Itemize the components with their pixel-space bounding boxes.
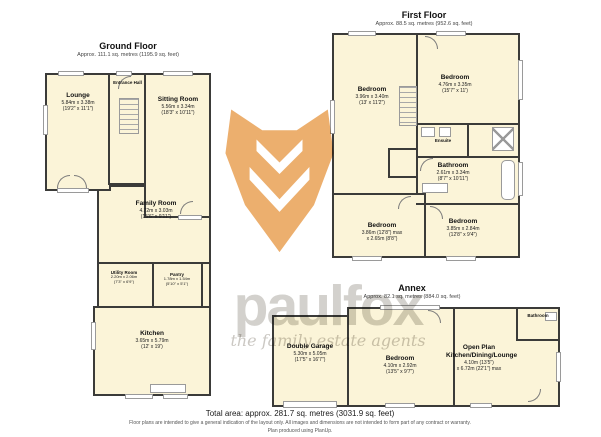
wall-bathroom [516,309,518,341]
window [385,403,415,408]
first-floor-area-text: Approx. 88.5 sq. metres (952.6 sq. feet) [344,21,504,27]
room-name: Bathroom [519,313,557,318]
ground-floor-title: Ground Floor Approx. 111.1 sq. metres (1… [48,41,208,58]
window [352,256,382,261]
window [125,394,153,399]
sink [439,127,451,137]
annex-title: Annex Approx. 82.1 sq. metres (884.0 sq.… [332,283,492,300]
room-name: Bedroom [350,222,414,230]
toilet [421,127,435,137]
garage-door [283,401,337,408]
wall-cupboard [388,176,416,178]
kitchen-counter [150,384,186,393]
room-dim-imperial: x 6.72m (22'1") max [446,366,512,372]
fox-logo-icon [222,103,337,261]
produced-text: Plan produced using PlanUp. [40,428,560,434]
room-name: Lounge [48,92,108,100]
room-name: Double Garage [278,343,342,351]
wall-bathroom [516,339,560,341]
shower [492,127,514,151]
bathtub [501,160,515,200]
room-name: Ensuite [425,138,461,143]
wall [416,203,518,205]
room-name: Kitchen [122,330,182,338]
room-label-bedroom-2: Bedroom 4.76m x 3.35m (15'7" x 11') [425,74,485,94]
room-label-entrance-hall: Entrance Hall [110,80,145,85]
wall [424,193,426,256]
annex-area-text: Approx. 82.1 sq. metres (884.0 sq. feet) [332,294,492,300]
ground-stairs [119,98,139,134]
window [556,352,561,382]
wall-utility-pantry [152,264,154,306]
wall-cupboard [388,148,416,150]
room-label-ensuite: Ensuite [425,138,461,143]
room-dim-imperial: (13'5" x 9'7") [368,369,432,375]
room-dim-imperial: (15'6" x 9'11") [116,214,196,220]
room-dim-imperial: (12'8" x 9'4") [432,232,494,238]
room-name: Bathroom [424,162,482,170]
wall [467,123,469,158]
room-name: Entrance Hall [110,80,145,85]
room-label-sitting: Sitting Room 5.56m x 3.34m (18'3" x 10'1… [148,96,208,116]
first-floor-title-text: First Floor [344,10,504,20]
room-dim-imperial: (15'7" x 11') [425,88,485,94]
first-floor-title: First Floor Approx. 88.5 sq. metres (952… [344,10,504,27]
room-name: Sitting Room [148,96,208,104]
room-dim-imperial: (7'3" x 6'9") [101,280,147,285]
window [470,403,492,408]
room-label-bathroom-annex: Bathroom [519,313,557,318]
room-name: Open Plan Kitchen/Dining/Lounge [446,344,512,360]
ground-floor-area-text: Approx. 111.1 sq. metres (1195.9 sq. fee… [48,52,208,58]
window [518,60,523,100]
room-label-bedroom-4: Bedroom 3.85m x 2.84m (12'8" x 9'4") [432,218,494,238]
room-dim-imperial: (17'5" x 16'7") [278,357,342,363]
window [518,162,523,196]
room-name: Bedroom [432,218,494,226]
room-label-bedroom-3: Bedroom 3.86m (12'8") max x 2.65m (8'8") [350,222,414,242]
room-label-bathroom-1: Bathroom 2.61m x 3.34m (8'7" x 10'11") [424,162,482,182]
window [91,322,96,350]
room-label-double-garage: Double Garage 5.30m x 5.05m (17'5" x 16'… [278,343,342,363]
room-dim-imperial: (12' x 19') [122,344,182,350]
room-label-bedroom-annex: Bedroom 4.10m x 2.92m (13'5" x 9'7") [368,355,432,375]
room-label-kitchen: Kitchen 3.65m x 5.79m (12' x 19') [122,330,182,350]
window [330,100,335,134]
room-dim-imperial: (13' x 11'2") [342,100,402,106]
room-kitchen [93,306,211,396]
room-name: Bedroom [342,86,402,94]
window [348,31,376,36]
room-dim-imperial: (5'10" x 5'1") [156,282,198,287]
annex-title-text: Annex [332,283,492,293]
room-label-pantry: Pantry 1.78m x 1.54m (5'10" x 5'1") [156,272,198,287]
window [58,71,84,76]
room-label-lounge: Lounge 5.84m x 3.38m (19'2" x 11'1") [48,92,108,112]
wall [334,193,426,195]
room-name: Bedroom [425,74,485,82]
patio-door-opening [57,188,89,193]
floorplan-canvas: Ground Floor Approx. 111.1 sq. metres (1… [0,0,601,437]
room-label-utility: Utility Room 2.20m x 2.06m (7'3" x 6'9") [101,270,147,285]
wall-pantry-corridor [201,264,203,306]
window [446,256,476,261]
ground-floor-title-text: Ground Floor [48,41,208,51]
window [163,71,193,76]
wall-cupboard [388,148,390,178]
disclaimer-text: Floor plans are intended to give a gener… [40,420,560,426]
total-area-text: Total area: approx. 281.7 sq. metres (30… [100,409,500,418]
room-dim-imperial: (19'2" x 11'1") [48,106,108,112]
room-name: Bedroom [368,355,432,363]
room-sitting [144,73,211,218]
room-lounge [45,73,111,191]
room-dim-imperial: x 2.65m (8'8") [350,236,414,242]
room-dim-imperial: (18'3" x 10'11") [148,110,208,116]
window [436,31,466,36]
window [163,394,188,399]
room-dim-imperial: (8'7" x 10'11") [424,176,482,182]
room-label-bedroom-1: Bedroom 3.96m x 3.40m (13' x 11'2") [342,86,402,106]
room-label-family: Family Room 4.72m x 3.03m (15'6" x 9'11"… [116,200,196,220]
room-label-open-plan: Open Plan Kitchen/Dining/Lounge 4.10m (1… [446,344,512,372]
bathroom-sink [422,183,448,193]
room-name: Family Room [116,200,196,208]
window [380,305,440,310]
